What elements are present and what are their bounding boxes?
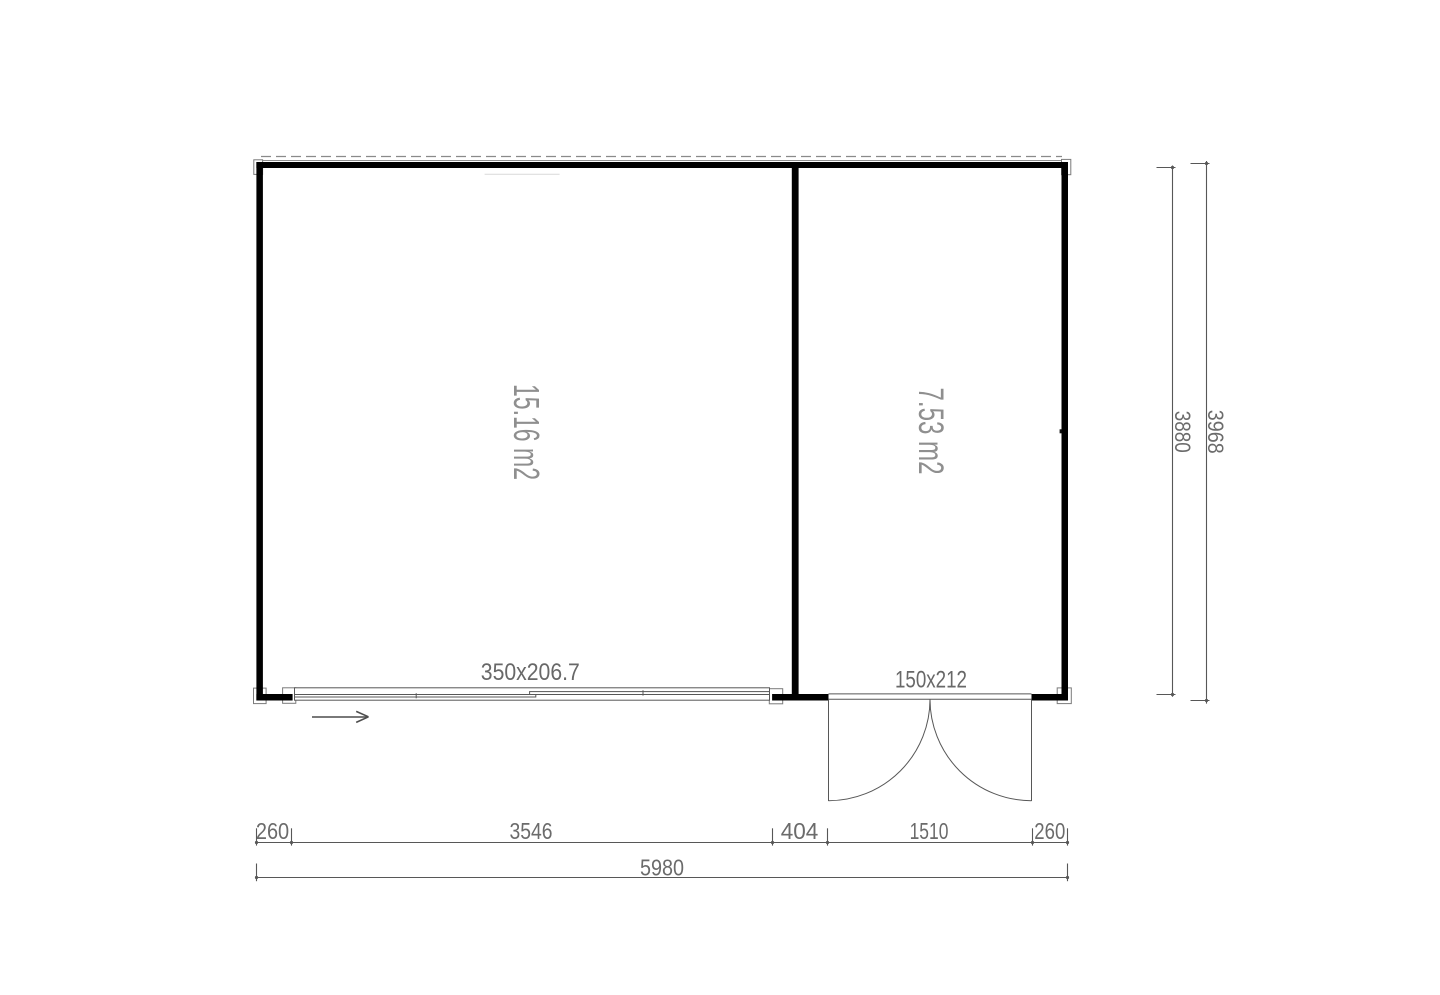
svg-text:3880: 3880: [1170, 411, 1195, 453]
svg-text:260: 260: [1034, 818, 1065, 844]
svg-text:404: 404: [781, 818, 819, 844]
svg-text:3546: 3546: [510, 818, 553, 844]
svg-text:15.16 m2: 15.16 m2: [506, 384, 547, 480]
svg-text:1510: 1510: [910, 818, 949, 844]
svg-text:7.53 m2: 7.53 m2: [911, 388, 950, 475]
svg-text:350x206.7: 350x206.7: [481, 659, 580, 686]
svg-text:3968: 3968: [1203, 410, 1228, 454]
svg-text:5980: 5980: [640, 855, 684, 881]
svg-text:150x212: 150x212: [895, 666, 967, 693]
svg-text:260: 260: [256, 818, 289, 844]
